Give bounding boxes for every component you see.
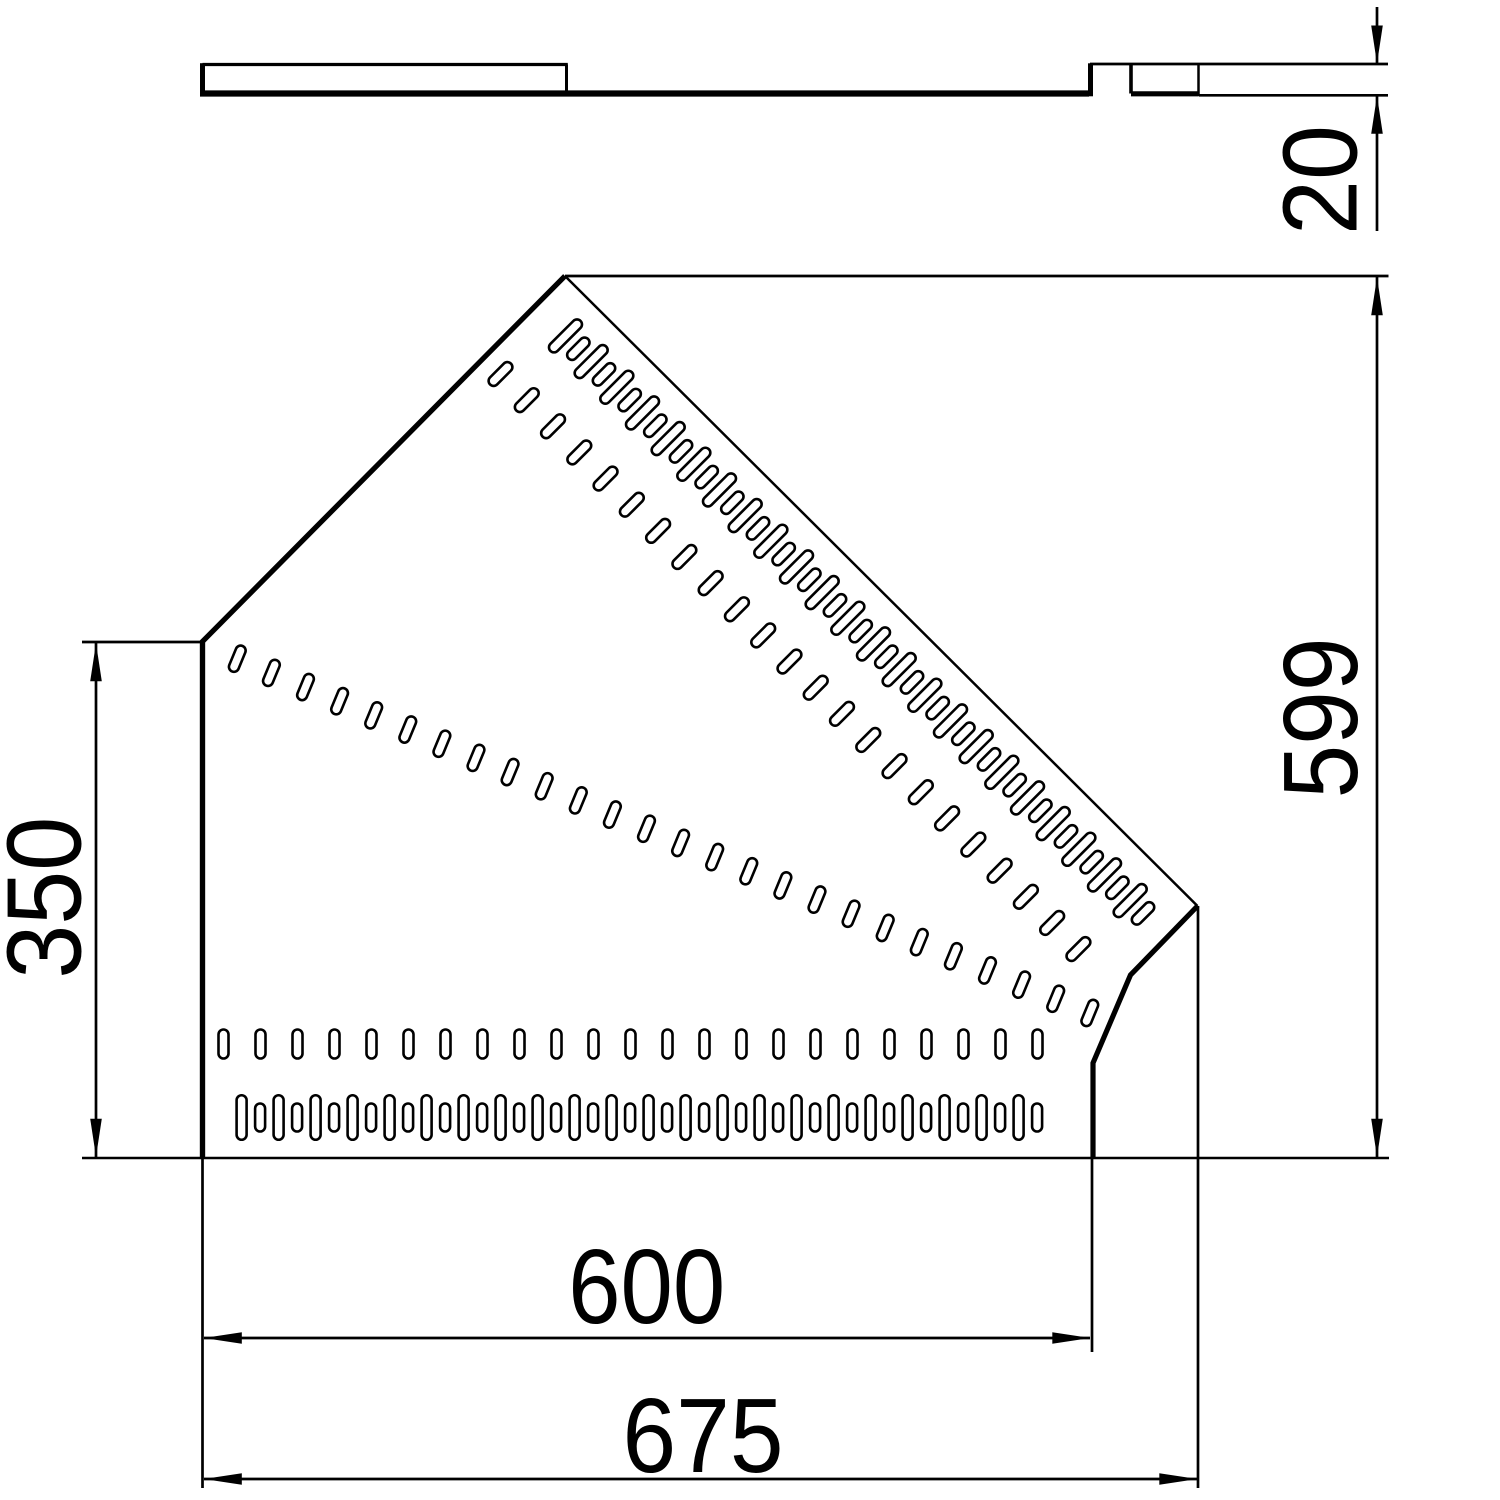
svg-text:599: 599 [1262,638,1380,799]
svg-text:350: 350 [0,817,103,979]
svg-text:600: 600 [568,1228,725,1346]
svg-text:20: 20 [1262,125,1380,235]
svg-text:675: 675 [623,1377,784,1495]
